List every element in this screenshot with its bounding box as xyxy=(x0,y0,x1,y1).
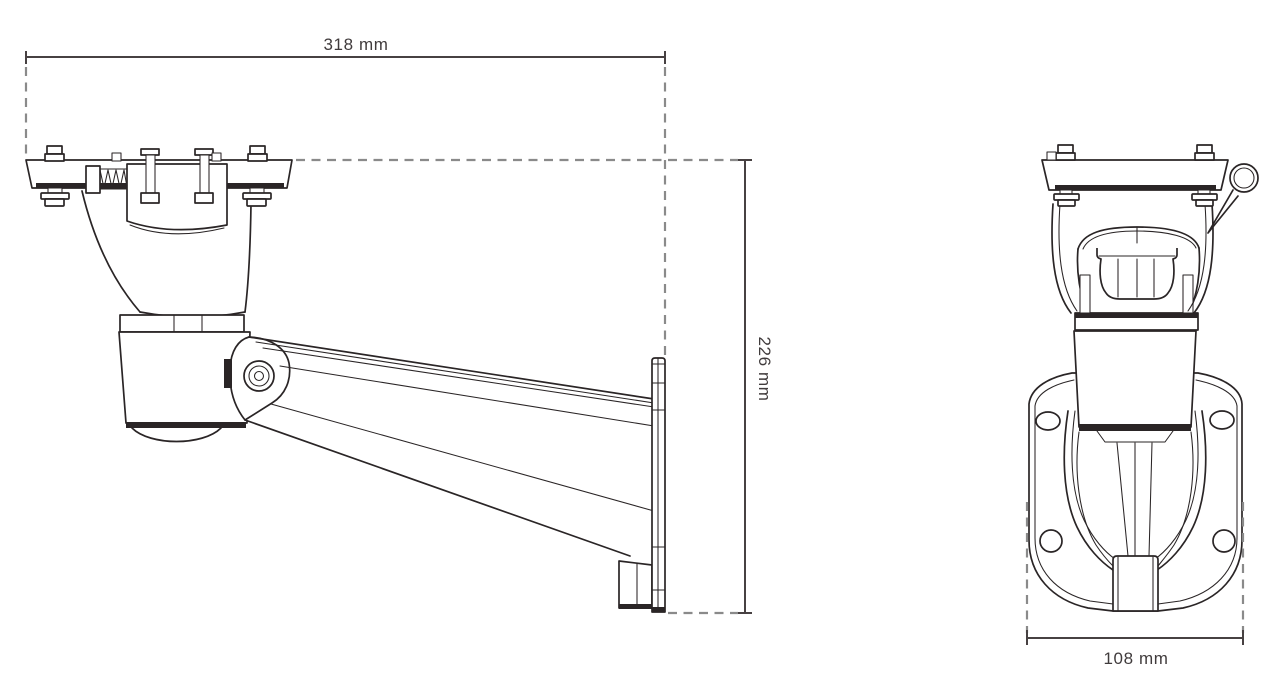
front-yoke-cup xyxy=(1077,227,1199,313)
front-plate-bolts xyxy=(1054,190,1217,206)
side-pivot-slot xyxy=(224,359,232,388)
dimensional-drawing-page: 318 mm 226 mm 108 mm xyxy=(0,0,1280,699)
bracket-dimensional-drawing: 318 mm 226 mm 108 mm xyxy=(0,0,1280,699)
front-neck-cylinder xyxy=(1074,331,1196,442)
overall-height-label: 226 mm xyxy=(755,336,774,401)
overall-length-label: 318 mm xyxy=(323,35,388,54)
side-pivot-screw xyxy=(244,361,274,391)
side-wall-plate xyxy=(652,358,665,612)
dimension-overall-length: 318 mm xyxy=(26,35,665,356)
front-platform-screws xyxy=(1047,145,1214,160)
front-collar xyxy=(1075,313,1198,330)
side-arm xyxy=(224,337,654,557)
side-foot-block xyxy=(619,561,652,609)
front-camera-plate xyxy=(1042,160,1228,190)
base-width-label: 108 mm xyxy=(1103,649,1168,668)
side-view-drawing xyxy=(26,146,665,612)
front-view-drawing xyxy=(1029,145,1258,611)
